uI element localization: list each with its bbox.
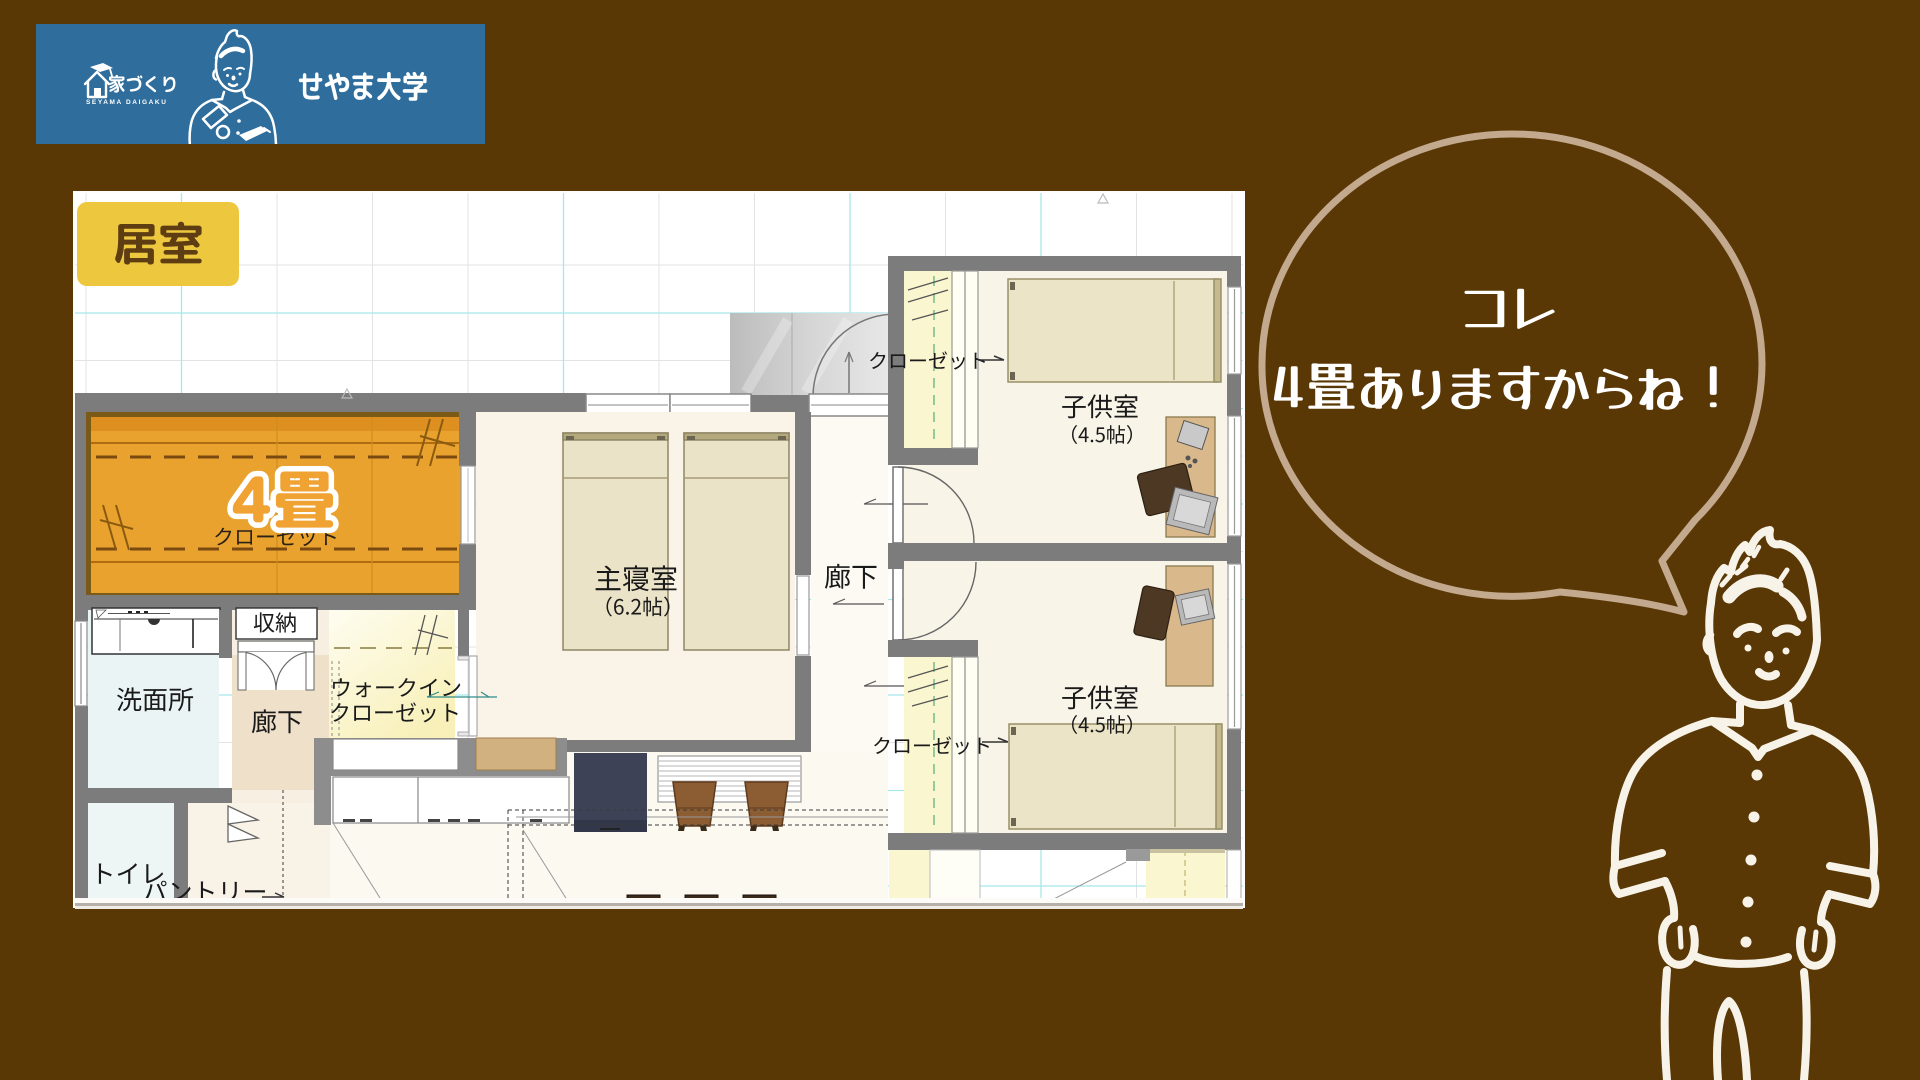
svg-text:SEYAMA DAIGAKU: SEYAMA DAIGAKU xyxy=(86,99,168,106)
